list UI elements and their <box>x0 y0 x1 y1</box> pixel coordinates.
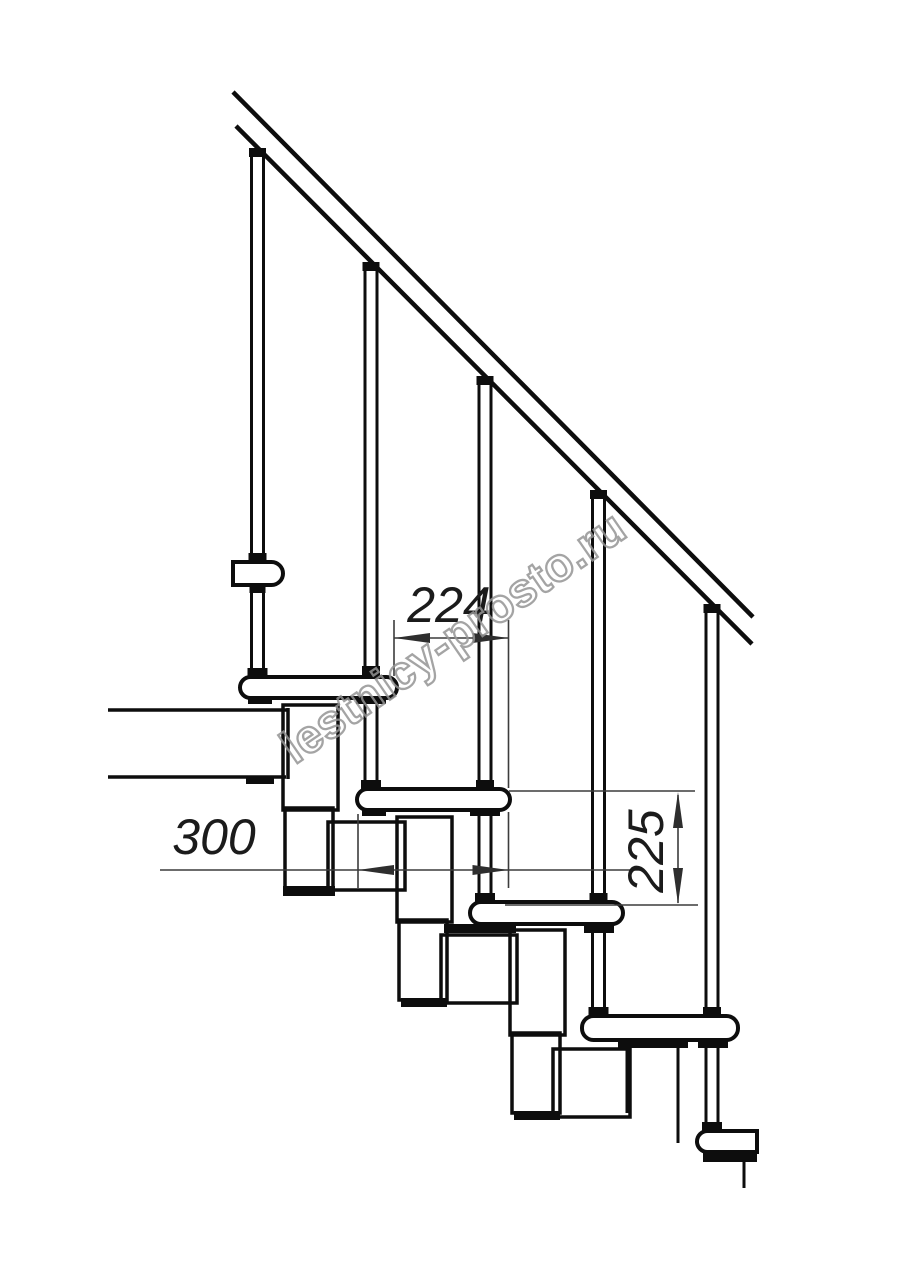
arrow-224-left <box>394 633 430 643</box>
mount-d-right <box>584 924 614 933</box>
tread-2 <box>240 677 397 698</box>
dim-label-tread-length: 300 <box>172 809 256 865</box>
tread-mounts <box>248 696 757 1162</box>
mount-c-left <box>362 809 386 816</box>
tread-3 <box>357 789 510 810</box>
arrow-225-up <box>673 792 683 828</box>
mount-f <box>703 1152 757 1162</box>
mount-e-right <box>698 1040 728 1048</box>
mount-b-right <box>356 696 386 704</box>
floor-slab <box>108 708 288 779</box>
handrail <box>233 92 753 644</box>
module-wide-box-d <box>441 935 517 1003</box>
module-lower-box-b <box>285 808 333 888</box>
mount-d <box>444 924 516 933</box>
arrow-225-down <box>673 868 683 904</box>
handrail-upper-edge <box>233 92 753 617</box>
tread-6 <box>697 1131 757 1152</box>
arrow-300-left <box>358 865 394 875</box>
module-wide-box-e <box>553 1049 630 1117</box>
tread-5 <box>582 1016 738 1040</box>
handrail-lower-edge <box>236 126 752 644</box>
staircase-drawing-page: 224 300 225 lestnicy-prosto.ru <box>0 0 914 1280</box>
dim-label-riser-height: 225 <box>618 809 674 894</box>
mount-c-right <box>470 808 500 816</box>
mount-e <box>618 1040 688 1048</box>
module-foot-c <box>401 998 447 1007</box>
module-foot-b <box>283 886 335 896</box>
mount-b-left <box>248 697 272 704</box>
tread-top-landing <box>233 562 283 585</box>
support-modules <box>283 705 744 1188</box>
staircase-technical-drawing: 224 300 225 <box>0 0 914 1280</box>
floor-end-foot <box>246 777 274 784</box>
dim-label-going: 224 <box>406 577 490 633</box>
module-wide-box-c <box>328 822 405 890</box>
module-tall-box-b <box>283 705 338 810</box>
module-foot-d <box>514 1111 560 1120</box>
baluster-2 <box>365 271 377 781</box>
